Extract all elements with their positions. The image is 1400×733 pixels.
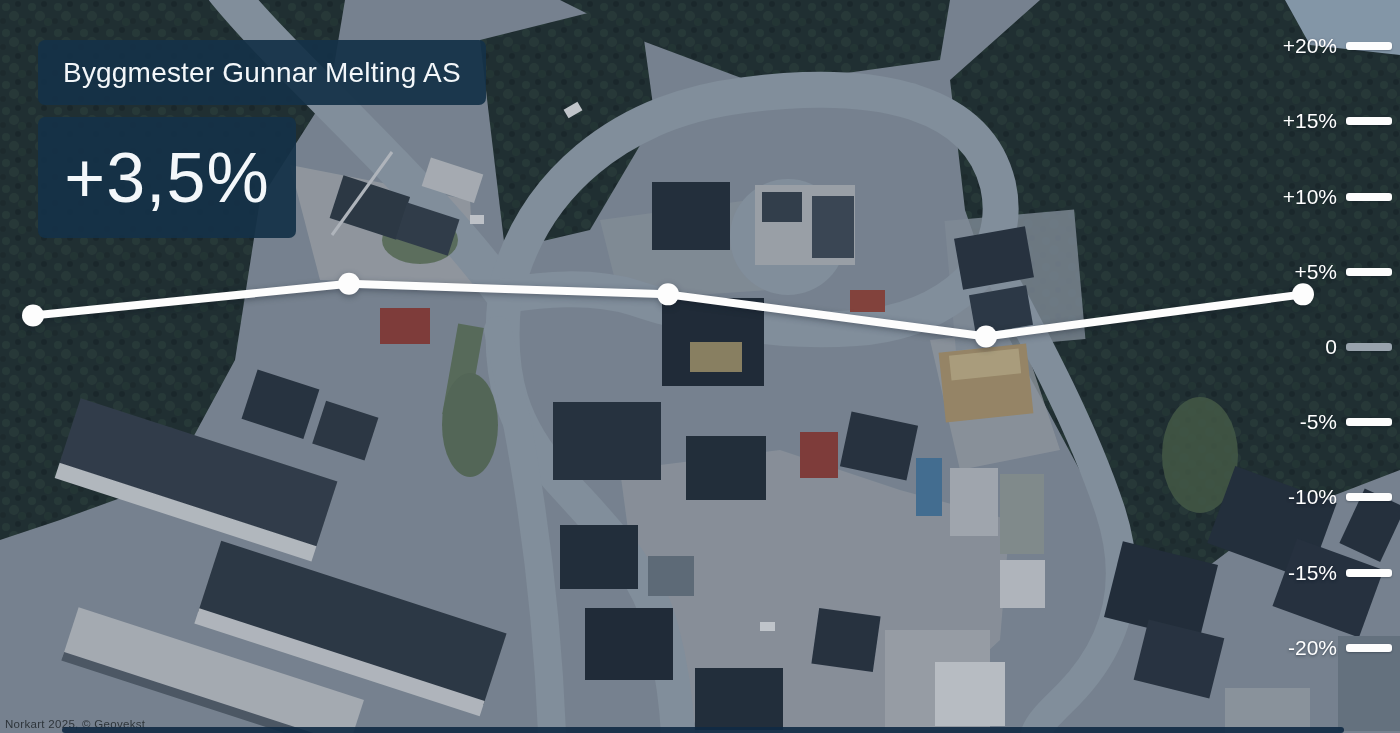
data-point-marker bbox=[975, 325, 997, 347]
data-point-marker bbox=[338, 273, 360, 295]
data-point-marker bbox=[22, 304, 44, 326]
data-point-marker bbox=[1292, 283, 1314, 305]
headline-percentage: +3,5% bbox=[64, 138, 269, 218]
data-point-marker bbox=[657, 283, 679, 305]
screenshot-root: +20%+15%+10%+5%0-5%-10%-15%-20% Byggmest… bbox=[0, 0, 1400, 733]
trend-line-chart bbox=[0, 0, 1400, 733]
company-name-badge: Byggmester Gunnar Melting AS bbox=[38, 40, 486, 105]
headline-percentage-badge: +3,5% bbox=[38, 117, 296, 238]
company-name: Byggmester Gunnar Melting AS bbox=[63, 57, 461, 89]
progress-bar[interactable] bbox=[62, 727, 1344, 733]
